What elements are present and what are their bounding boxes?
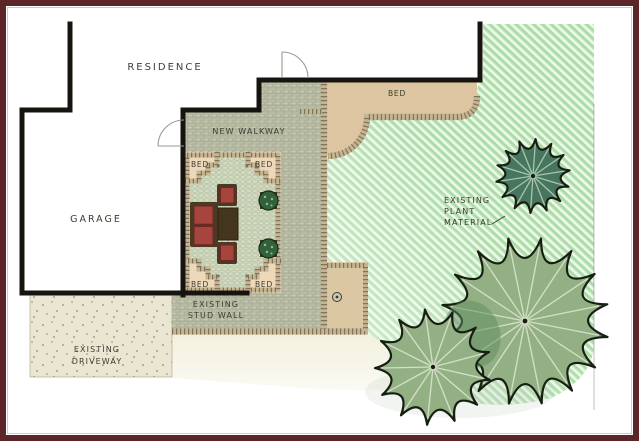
label-garage: GARAGE bbox=[70, 214, 122, 225]
label-bed-tr: BED bbox=[255, 160, 273, 169]
label-bed-top: BED bbox=[388, 89, 406, 98]
label-new-walkway: NEW WALKWAY bbox=[212, 127, 285, 136]
svg-text:DRIVEWAY: DRIVEWAY bbox=[72, 357, 123, 366]
label-bed-br: BED bbox=[255, 280, 273, 289]
chair-top bbox=[217, 184, 237, 206]
svg-text:MATERIAL: MATERIAL bbox=[444, 218, 492, 227]
svg-text:EXISTING: EXISTING bbox=[444, 196, 490, 205]
planter-shrub-bottom bbox=[259, 239, 278, 258]
svg-text:PLANT: PLANT bbox=[444, 207, 475, 216]
label-bed-tl: BED bbox=[191, 160, 209, 169]
coffee-table bbox=[218, 208, 238, 240]
utility-pad bbox=[325, 262, 368, 334]
pad-drain-center bbox=[336, 296, 339, 299]
pad-surface bbox=[325, 262, 368, 334]
plan-drawing: RESIDENCE GARAGE NEW WALKWAY BED BED BED… bbox=[0, 0, 639, 441]
label-bed-bl: BED bbox=[191, 280, 209, 289]
chair-bottom bbox=[217, 242, 237, 264]
door-side-icon bbox=[158, 120, 184, 146]
svg-text:EXISTING: EXISTING bbox=[74, 345, 120, 354]
sofa bbox=[190, 202, 218, 247]
door-top-icon bbox=[282, 52, 308, 78]
svg-text:STUD WALL: STUD WALL bbox=[188, 311, 244, 320]
label-residence: RESIDENCE bbox=[127, 62, 202, 73]
landscape-plan-page: RESIDENCE GARAGE NEW WALKWAY BED BED BED… bbox=[0, 0, 639, 441]
planter-shrub-top bbox=[259, 191, 278, 210]
svg-text:EXISTING: EXISTING bbox=[193, 300, 239, 309]
